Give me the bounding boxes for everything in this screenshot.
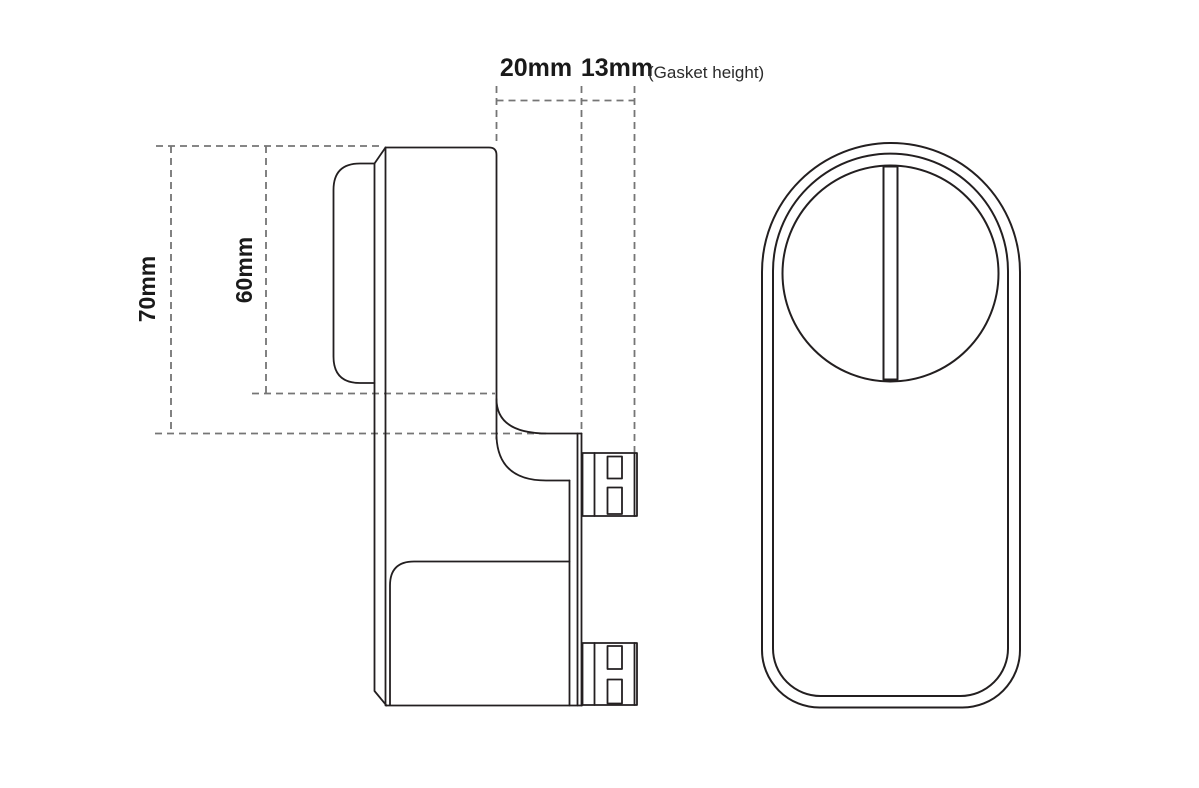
side-neck-lower-curve bbox=[497, 437, 570, 481]
clamp-outline bbox=[583, 453, 638, 516]
clamp-slot-lower bbox=[608, 488, 623, 515]
clamp-slot-upper bbox=[608, 646, 623, 669]
dim-label-inner-height: 60mm bbox=[232, 230, 256, 310]
front-inner-shell bbox=[773, 154, 1008, 696]
front-thumbturn-dial bbox=[783, 166, 999, 382]
side-mounting-clamp-bottom bbox=[583, 643, 638, 705]
side-mounting-clamp-top bbox=[583, 453, 638, 516]
front-view bbox=[762, 143, 1020, 708]
line-art bbox=[0, 0, 1199, 788]
clamp-outline bbox=[583, 643, 638, 705]
dim-label-outer-height: 70mm bbox=[135, 249, 159, 329]
dimension-lines bbox=[155, 86, 635, 452]
side-neck-upper-curve bbox=[497, 399, 582, 434]
dim-label-body-depth: 20mm bbox=[496, 56, 576, 80]
side-battery-cover-seam bbox=[390, 562, 570, 706]
dim-label-gasket-note: (Gasket height) bbox=[648, 63, 764, 83]
front-thumbturn-bar bbox=[884, 167, 898, 380]
front-outer-shell bbox=[762, 143, 1020, 708]
side-thumbturn-knob bbox=[334, 164, 375, 384]
dim-label-gasket-depth: 13mm bbox=[577, 56, 657, 80]
side-view bbox=[334, 148, 638, 706]
clamp-slot-upper bbox=[608, 457, 623, 479]
clamp-slot-lower bbox=[608, 680, 623, 704]
lock-dimensions-diagram: 20mm 13mm (Gasket height) 70mm 60mm bbox=[0, 0, 1199, 788]
side-body-outline bbox=[386, 148, 497, 440]
